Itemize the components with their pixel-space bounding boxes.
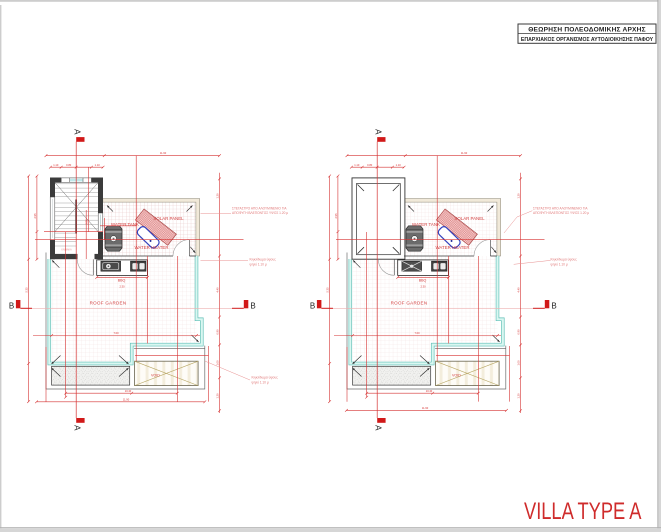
svg-text:WATER TANK: WATER TANK [412,222,440,227]
svg-text:WATER TANK: WATER TANK [111,222,139,227]
svg-text:10.40: 10.40 [426,389,433,393]
svg-text:2.95: 2.95 [33,213,37,219]
svg-text:4.40: 4.40 [215,287,219,293]
svg-text:2.30: 2.30 [119,285,125,289]
svg-text:ΑΠΟΦΥΓΗ ΒΛΕΠΟΝΤΟΣ ΥΨΟΣ 1.20 μ: ΑΠΟΦΥΓΗ ΒΛΕΠΟΝΤΟΣ ΥΨΟΣ 1.20 μ [533,211,589,215]
svg-text:WATER HEATER: WATER HEATER [134,245,168,250]
svg-text:Κιγκλίδωμα ύψους: Κιγκλίδωμα ύψους [250,258,277,262]
svg-text:BBQ: BBQ [118,278,126,282]
svg-text:2.86: 2.86 [85,219,89,225]
svg-text:11.90: 11.90 [123,397,130,401]
svg-text:1.20: 1.20 [215,393,219,399]
svg-text:0.90: 0.90 [516,329,520,335]
svg-text:11.90: 11.90 [422,406,429,410]
svg-text:1.10: 1.10 [354,163,360,167]
svg-text:VOID: VOID [452,374,461,378]
svg-text:ΚΛΙΜΑΚΑ: ΚΛΙΜΑΚΑ [61,248,72,251]
svg-text:SOLAR PANEL: SOLAR PANEL [153,216,184,221]
svg-text:A: A [373,129,382,135]
svg-text:5.35: 5.35 [326,287,330,293]
svg-text:4.40: 4.40 [516,287,520,293]
svg-text:B: B [310,301,315,310]
svg-text:ΘΕΩΡΗΣΗ ΠΟΛΕΟΔΟΜΙΚΗΣ ΑΡΧΗΣ: ΘΕΩΡΗΣΗ ΠΟΛΕΟΔΟΜΙΚΗΣ ΑΡΧΗΣ [528,26,646,33]
svg-text:2.95: 2.95 [334,213,338,219]
svg-text:ψηλό 1.10 μ: ψηλό 1.10 μ [250,263,267,267]
svg-text:1.00: 1.00 [215,360,219,366]
svg-text:ψηλό 1.10 μ: ψηλό 1.10 μ [551,263,568,267]
svg-text:10.40: 10.40 [125,389,132,393]
svg-text:B: B [9,301,14,310]
svg-text:ΕΠΑΡΧΙΑΚΟΣ ΟΡΓΑΝΙΣΜΟΣ ΑΥΤΟΔΙΟΙ: ΕΠΑΡΧΙΑΚΟΣ ΟΡΓΑΝΙΣΜΟΣ ΑΥΤΟΔΙΟΙΚΗΣΗΣ ΠΑΦΟ… [521,37,654,43]
svg-text:5.35: 5.35 [25,287,29,293]
svg-text:0.80: 0.80 [367,163,373,167]
svg-text:11.90: 11.90 [461,151,468,155]
svg-text:ψηλό 1.10 μ: ψηλό 1.10 μ [252,380,269,384]
svg-text:A: A [373,425,382,431]
svg-text:ΣΤΕΓΑΣΤΡΟ ΑΠΟ ΑΛΟΥΜΙΝΕΝΙΟ ΓΙΑ: ΣΤΕΓΑΣΤΡΟ ΑΠΟ ΑΛΟΥΜΙΝΕΝΙΟ ΓΙΑ [232,206,287,210]
svg-text:1.20: 1.20 [516,193,520,199]
svg-text:ROOF GARDEN: ROOF GARDEN [90,301,127,306]
svg-text:B: B [250,302,255,311]
svg-text:ΣΤΕΓΑΣΤΡΟ ΑΠΟ ΑΛΟΥΜΙΝΕΝΙΟ ΓΙΑ: ΣΤΕΓΑΣΤΡΟ ΑΠΟ ΑΛΟΥΜΙΝΕΝΙΟ ΓΙΑ [533,206,588,210]
svg-text:VILLA TYPE A: VILLA TYPE A [524,498,642,525]
svg-text:Κιγκλίδωμα ύψους: Κιγκλίδωμα ύψους [551,258,578,262]
svg-text:7.00: 7.00 [113,331,119,335]
svg-text:1.10: 1.10 [95,163,101,167]
svg-text:0.80: 0.80 [66,163,72,167]
svg-text:WATER HEATER: WATER HEATER [435,245,469,250]
svg-text:2.30: 2.30 [420,285,426,289]
svg-text:B: B [551,302,556,311]
svg-text:A: A [72,129,81,135]
svg-text:Κιγκλίδωμα ύψους: Κιγκλίδωμα ύψους [252,375,279,379]
svg-text:A: A [72,425,81,431]
svg-text:VOID: VOID [151,374,160,378]
svg-text:ΑΠΟΦΥΓΗ ΒΛΕΠΟΝΤΟΣ ΥΨΟΣ 1.20 μ: ΑΠΟΦΥΓΗ ΒΛΕΠΟΝΤΟΣ ΥΨΟΣ 1.20 μ [232,211,288,215]
svg-text:1.20: 1.20 [215,193,219,199]
svg-text:BBQ: BBQ [419,278,427,282]
svg-text:SOLAR PANEL: SOLAR PANEL [454,216,485,221]
svg-text:1.20: 1.20 [516,393,520,399]
svg-text:1.00: 1.00 [516,360,520,366]
svg-text:ROOF GARDEN: ROOF GARDEN [391,301,428,306]
svg-text:11.90: 11.90 [160,151,167,155]
svg-text:7.00: 7.00 [414,331,420,335]
svg-text:0.90: 0.90 [215,329,219,335]
svg-text:1.10: 1.10 [396,163,402,167]
svg-text:1.10: 1.10 [53,163,59,167]
